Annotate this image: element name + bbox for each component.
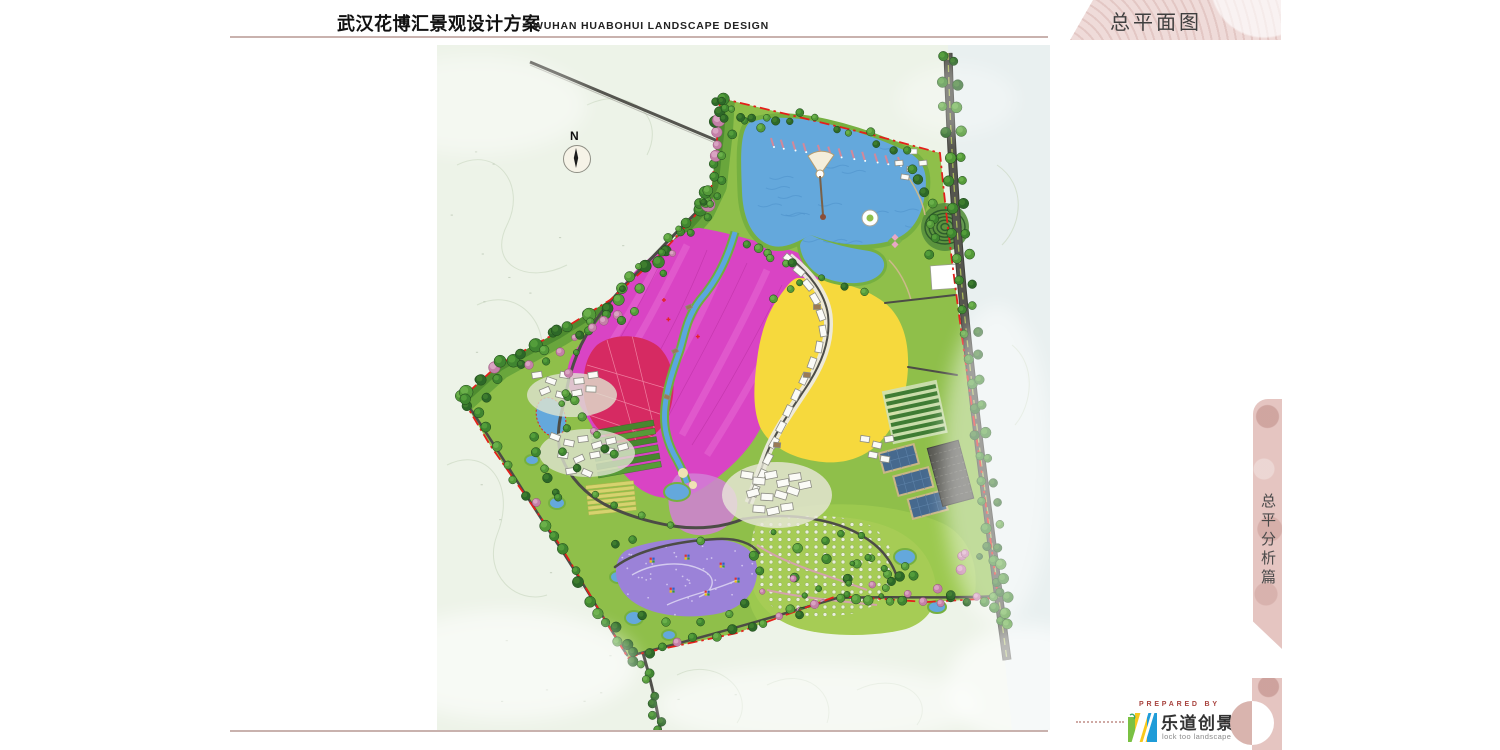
master-plan-map: N <box>437 45 1050 730</box>
presentation-page: 武汉花博汇景观设计方案 WUHAN HUABOHUI LANDSCAPE DES… <box>0 0 1500 750</box>
page-title: 武汉花博汇景观设计方案 <box>337 10 541 36</box>
credit-dotted-line-left <box>1076 721 1124 723</box>
logo-name-cn: 乐道创景 <box>1161 709 1235 734</box>
compass-icon <box>563 145 591 173</box>
corner-circle-ornament <box>1230 701 1274 745</box>
footer-divider <box>230 730 1048 732</box>
side-tab-analysis-section: 总平分析篇 <box>1253 399 1282 649</box>
greenhouse-rows <box>882 380 948 444</box>
site-plan-drawing <box>437 45 1050 730</box>
ledao-logo-icon <box>1128 711 1158 744</box>
prepared-by-label: PREPARED BY <box>1139 701 1220 708</box>
page-title-en: WUHAN HUABOHUI LANDSCAPE DESIGN <box>533 20 769 32</box>
header-divider <box>230 36 1048 38</box>
logo-name-en: lock too landscape <box>1162 732 1231 741</box>
side-tab-label: 总平分析篇 <box>1257 493 1278 588</box>
corner-ornament-strip <box>1252 678 1282 750</box>
compass-needle-icon <box>564 146 588 170</box>
compass-north-label: N <box>570 129 579 143</box>
corner-tab-master-plan: 总平面图 <box>1070 0 1281 40</box>
corner-tab-label: 总平面图 <box>1070 6 1202 35</box>
